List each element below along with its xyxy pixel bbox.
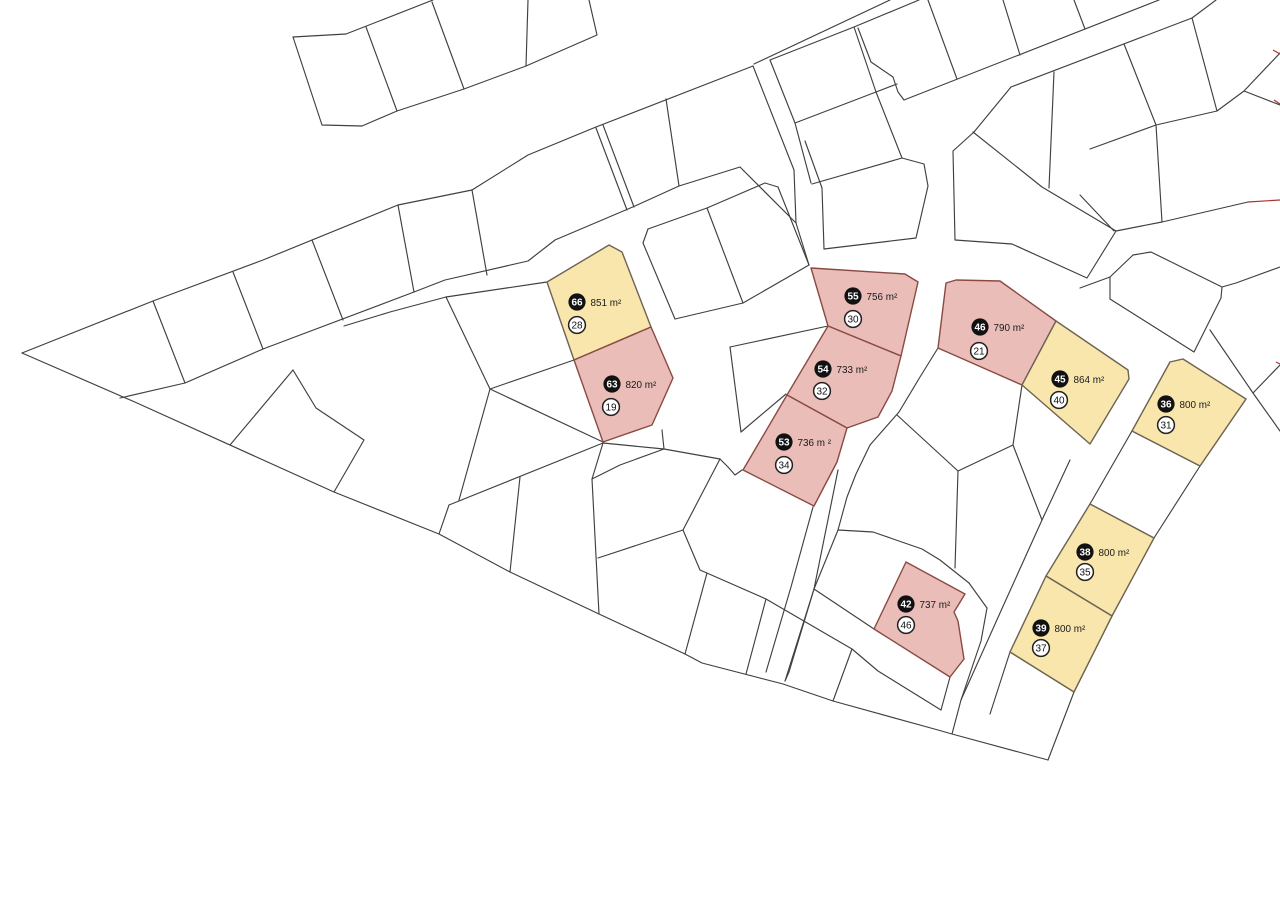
svg-text:756 m²: 756 m²	[867, 292, 898, 303]
svg-text:63: 63	[606, 380, 618, 391]
svg-text:39: 39	[1035, 624, 1047, 635]
svg-text:737 m²: 737 m²	[920, 600, 951, 611]
svg-text:736 m ²: 736 m ²	[798, 438, 832, 449]
svg-text:34: 34	[778, 461, 790, 472]
svg-text:800 m²: 800 m²	[1055, 624, 1086, 635]
svg-text:31: 31	[1160, 421, 1172, 432]
svg-text:21: 21	[973, 347, 985, 358]
svg-text:30: 30	[847, 315, 859, 326]
svg-text:42: 42	[900, 600, 912, 611]
svg-text:800 m²: 800 m²	[1099, 548, 1130, 559]
svg-text:40: 40	[1053, 396, 1065, 407]
svg-text:733 m²: 733 m²	[837, 365, 868, 376]
svg-text:851 m²: 851 m²	[591, 298, 622, 309]
svg-text:54: 54	[817, 365, 829, 376]
svg-text:820 m²: 820 m²	[626, 380, 657, 391]
svg-text:28: 28	[571, 321, 583, 332]
svg-text:37: 37	[1035, 644, 1047, 655]
svg-text:800 m²: 800 m²	[1180, 400, 1211, 411]
svg-text:19: 19	[605, 403, 617, 414]
svg-text:864 m²: 864 m²	[1074, 375, 1105, 386]
svg-text:53: 53	[778, 438, 790, 449]
svg-text:35: 35	[1079, 568, 1091, 579]
svg-text:45: 45	[1054, 375, 1066, 386]
svg-text:46: 46	[900, 621, 912, 632]
svg-text:36: 36	[1160, 400, 1172, 411]
svg-text:55: 55	[847, 292, 859, 303]
svg-text:790 m²: 790 m²	[994, 323, 1025, 334]
svg-text:66: 66	[571, 298, 583, 309]
svg-text:46: 46	[974, 323, 986, 334]
svg-text:38: 38	[1079, 548, 1091, 559]
svg-text:32: 32	[816, 387, 828, 398]
